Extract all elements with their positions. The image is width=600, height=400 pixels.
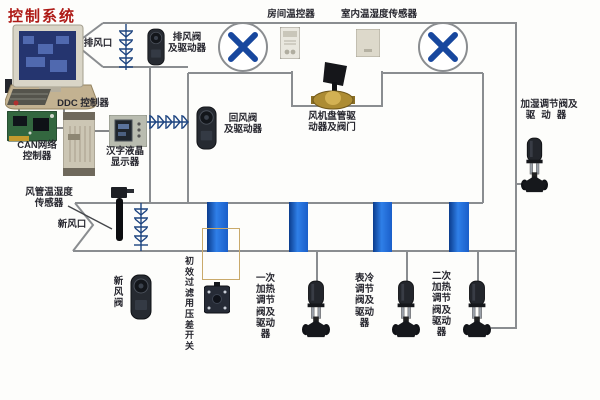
indoor-sensor-icon [356,29,380,57]
lcd-display-icon [109,115,147,147]
fan-coil-valve-icon [311,60,355,110]
primary-heating-valve-label: 一次加热调节阀及驱动器 [255,273,276,340]
humidifier-valve-label-line2: 驱动器 [516,110,582,121]
water-pipe-4 [449,202,469,252]
humidifier-valve-label: 加湿调节阀及 驱动器 [516,99,582,122]
can-label-line2: 控制器 [12,151,62,162]
comm-link-symbol [146,115,188,129]
fresh-vent-label: 新风口 [54,219,90,230]
room-thermostat-icon [280,27,300,59]
humidifier-valve-icon [521,136,548,196]
exhaust-damper-symbol [119,24,133,70]
indoor-sensor-label: 室内温湿度传感器 [338,9,420,20]
exhaust-actuator-label-line1: 排风阀 [163,32,211,43]
lcd-label-line2: 显示器 [102,157,148,168]
cooling-valve-label: 表冷调节阀及驱动器 [354,273,375,329]
exhaust-actuator-label-line2: 及驱动器 [163,43,211,54]
secondary-heating-valve-icon [463,279,491,341]
fresh-valve-label: 新风阀 [113,276,124,310]
return-fan-icon [219,23,267,71]
page-title: 控制系统 [8,5,76,26]
fan-coil-label-line1: 风机盘管驱 [301,111,363,122]
ddc-label: DDC 控制器 [55,98,111,109]
filter-pressure-switch-icon [204,282,230,314]
hvac-control-system-diagram: 控制系统 DDC 控制器 CAN网络 控制器 汉字液晶 显示器 排风口 排风阀 … [0,0,600,400]
return-actuator-label-line2: 及驱动器 [222,124,264,135]
exhaust-vent-label: 排风口 [78,38,118,49]
fan-coil-label: 风机盘管驱 动器及阀门 [301,111,363,134]
fan-coil-label-line2: 动器及阀门 [301,122,363,133]
ddc-controller-icon [63,112,95,176]
secondary-heating-valve-label: 二次加热调节阀及驱动器 [431,271,452,338]
fresh-damper-symbol [134,203,148,251]
water-pipe-3 [373,202,392,252]
right-lower-pipe [491,251,516,328]
duct-sensor-label-line1: 风管温湿度 [24,187,74,198]
exhaust-actuator-label: 排风阀 及驱动器 [163,32,211,55]
return-damper-actuator-icon [195,106,218,150]
duct-sensor-label: 风管温湿度 传感器 [24,187,74,210]
humidifier-valve-label-line1: 加湿调节阀及 [516,99,582,110]
lcd-label-line1: 汉字液晶 [102,146,148,157]
supply-fan-icon [419,23,467,71]
duct-sensor-probe-icon [111,187,135,243]
cooling-valve-icon [392,279,420,341]
primary-heating-valve-icon [302,279,330,341]
duct-sensor-label-line2: 传感器 [24,198,74,209]
filter-switch-label: 初效过滤用压差开关 [184,256,195,351]
lcd-label: 汉字液晶 显示器 [102,146,148,169]
can-label-line1: CAN网络 [12,140,62,151]
filter-switch-frame [202,228,240,280]
can-label: CAN网络 控制器 [12,140,62,163]
return-actuator-label-line1: 回风阀 [222,113,264,124]
water-pipe-2 [289,202,308,252]
return-actuator-label: 回风阀 及驱动器 [222,113,264,136]
room-thermostat-label: 房间温控器 [263,9,319,20]
fresh-damper-actuator-icon [130,271,152,323]
